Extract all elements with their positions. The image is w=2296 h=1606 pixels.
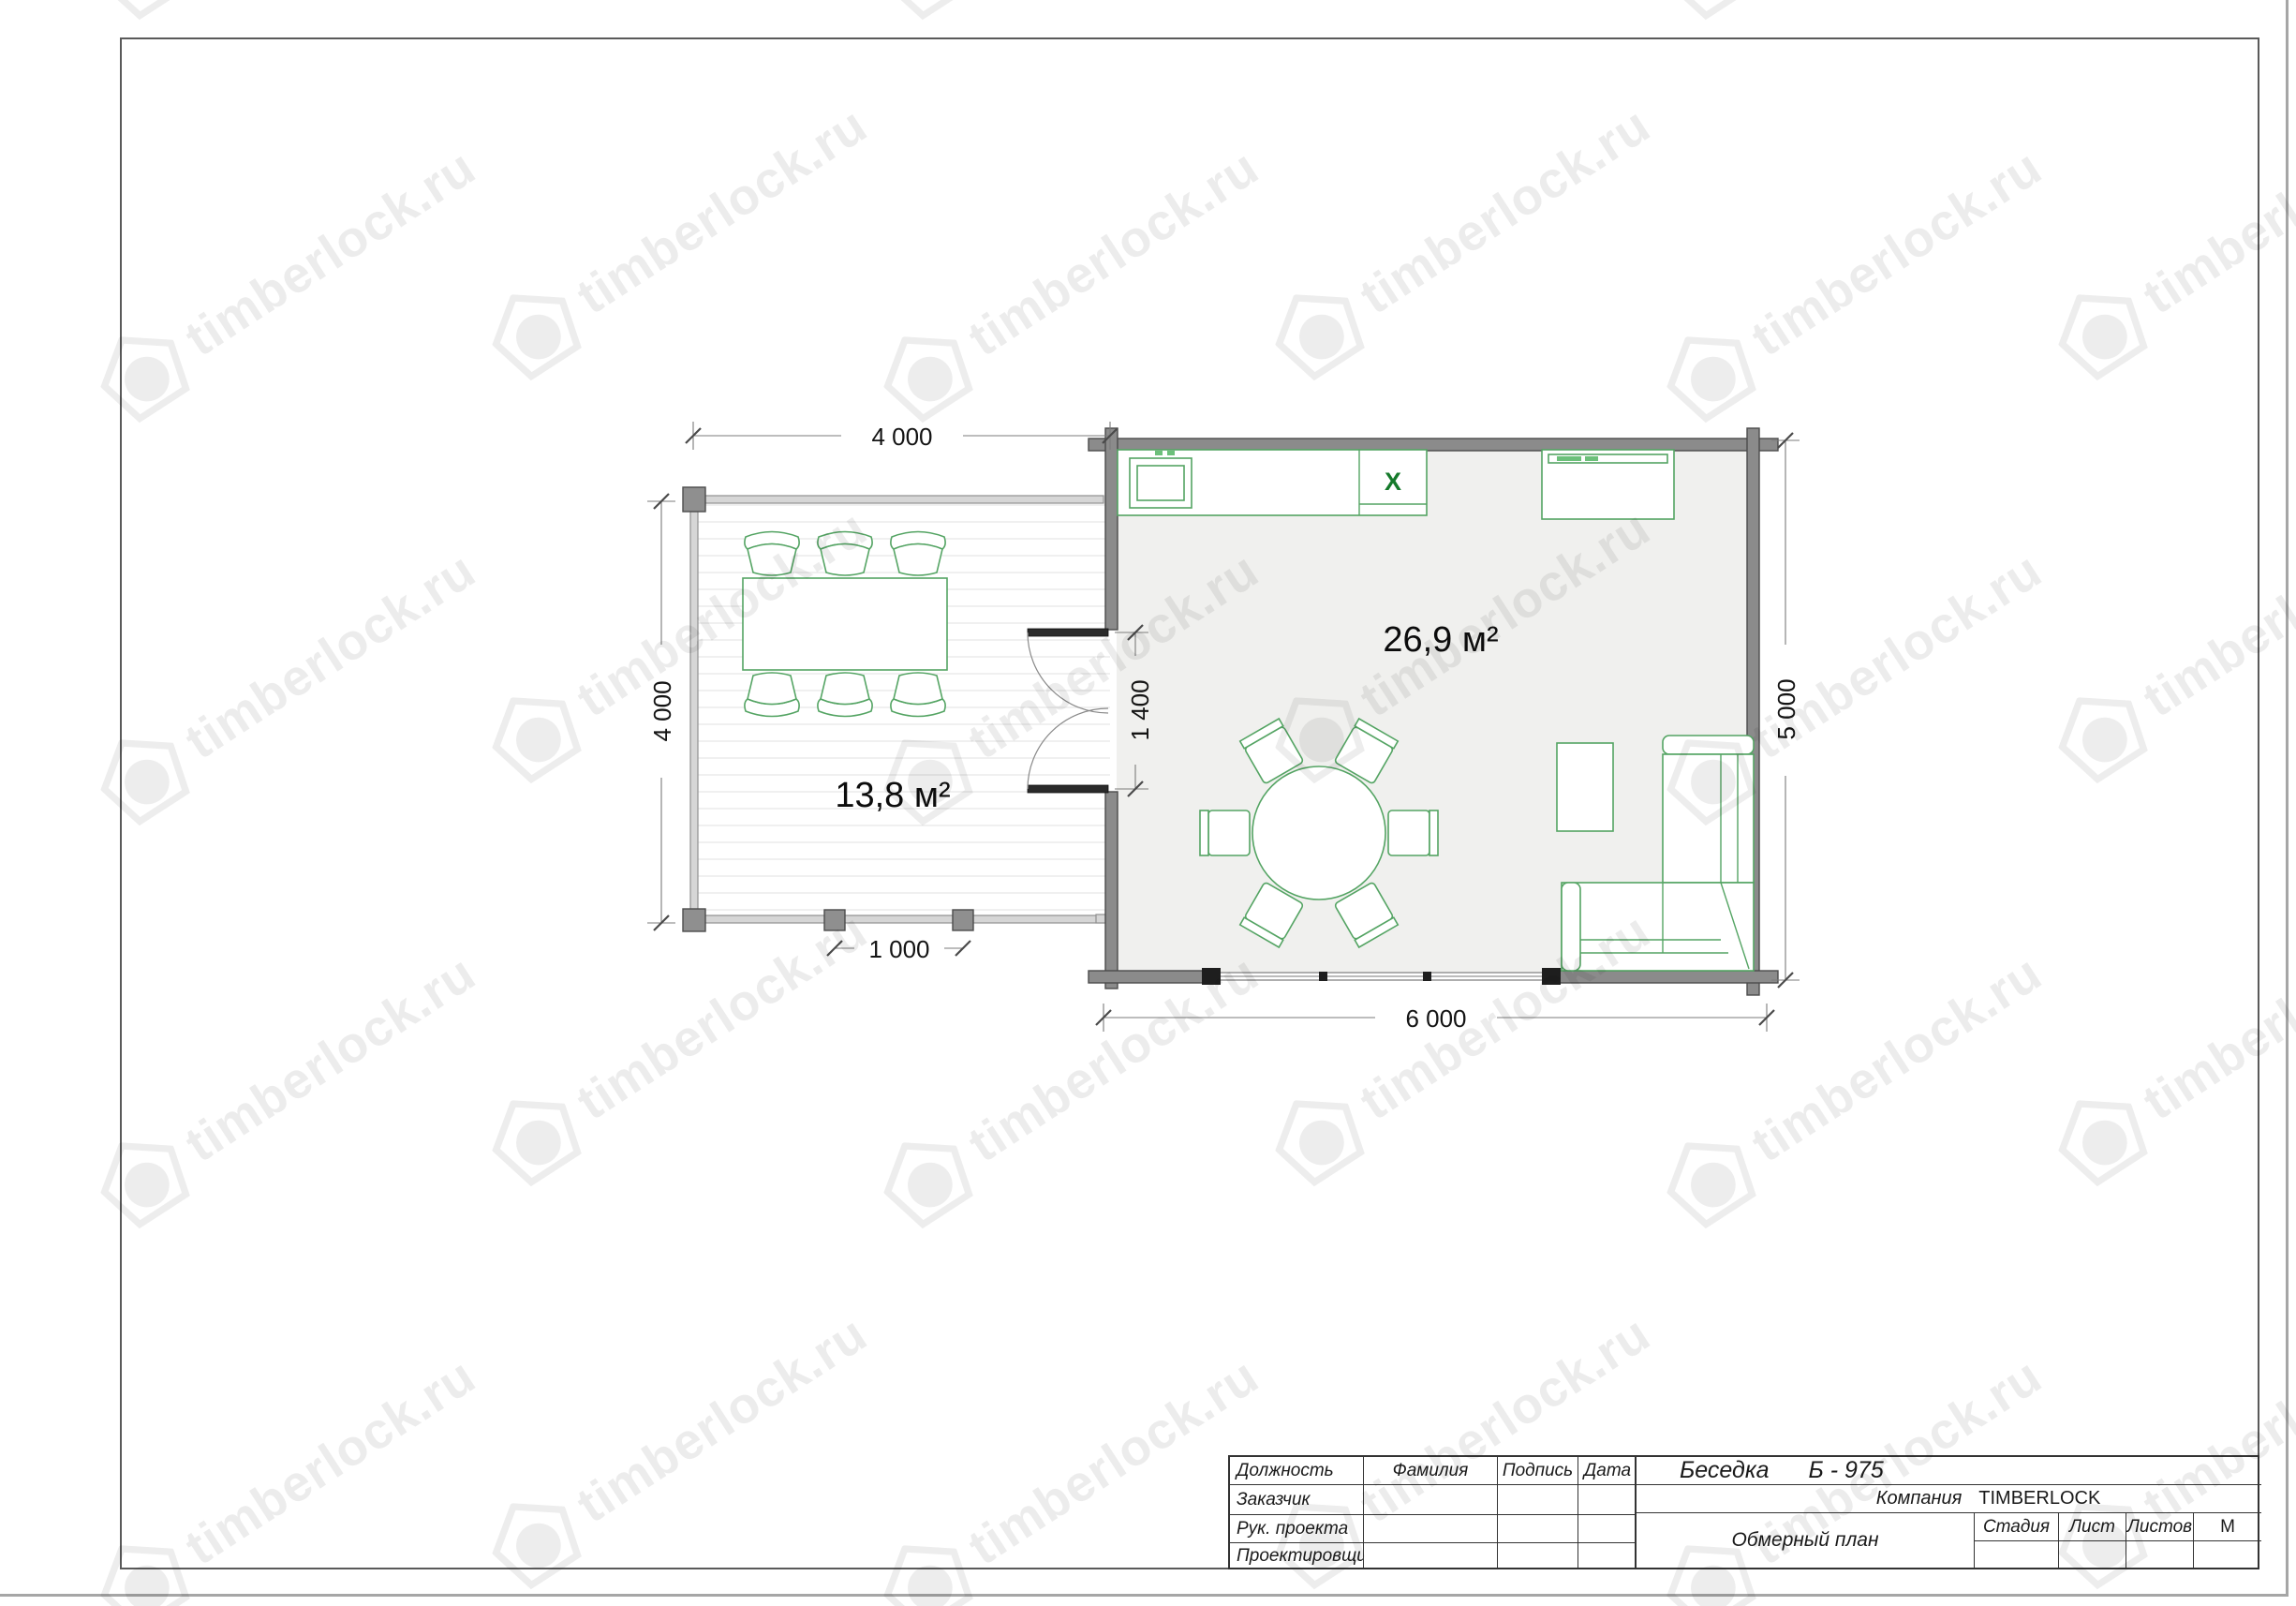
project-title-row: Беседка Б - 975 — [1637, 1457, 2261, 1485]
tb-row-project-lead: Рук. проекта — [1230, 1515, 1364, 1543]
drawing-sheet: X — [0, 0, 2296, 1606]
tb-empty-cell — [1498, 1485, 1578, 1515]
title-block: Должность Фамилия Подпись Дата Заказчик … — [1228, 1455, 2259, 1569]
title-block-right: Беседка Б - 975 Компания TIMBERLOCK Обме… — [1637, 1457, 2261, 1568]
project-type: Беседка — [1680, 1457, 1770, 1484]
sheet-edge — [0, 1594, 2289, 1597]
tb-row-designer: Проектировщик — [1230, 1543, 1364, 1569]
company-row: Компания TIMBERLOCK — [1637, 1485, 2261, 1513]
tb-empty-cell — [2194, 1541, 2261, 1568]
stage-header: Стадия — [1975, 1513, 2059, 1541]
sheet-edge — [2286, 0, 2289, 1596]
tb-signature-header: Подпись — [1498, 1457, 1578, 1485]
drawing-info-grid: Обмерный план Стадия Лист Листов М — [1637, 1513, 2261, 1568]
tb-row-customer: Заказчик — [1230, 1485, 1364, 1515]
drawing-name: Обмерный план — [1637, 1513, 1975, 1568]
tb-empty-cell — [2059, 1541, 2126, 1568]
drawing-frame — [120, 37, 2259, 1569]
sheets-header: Листов — [2126, 1513, 2194, 1541]
tb-empty-cell — [1364, 1515, 1498, 1543]
tb-empty-cell — [1364, 1543, 1498, 1569]
title-block-left-grid: Должность Фамилия Подпись Дата Заказчик … — [1230, 1457, 1637, 1568]
tb-position-header: Должность — [1230, 1457, 1364, 1485]
tb-empty-cell — [1364, 1485, 1498, 1515]
tb-date-header: Дата — [1578, 1457, 1637, 1485]
tb-empty-cell — [1498, 1543, 1578, 1569]
tb-empty-cell — [1975, 1541, 2059, 1568]
company-label: Компания — [1876, 1488, 1963, 1509]
tb-empty-cell — [2126, 1541, 2194, 1568]
scale-header: М — [2194, 1513, 2261, 1541]
tb-empty-cell — [1578, 1543, 1637, 1569]
project-code: Б - 975 — [1809, 1457, 1884, 1484]
company-name: TIMBERLOCK — [1978, 1488, 2100, 1509]
tb-empty-cell — [1578, 1515, 1637, 1543]
tb-empty-cell — [1498, 1515, 1578, 1543]
tb-surname-header: Фамилия — [1364, 1457, 1498, 1485]
tb-empty-cell — [1578, 1485, 1637, 1515]
sheet-header: Лист — [2059, 1513, 2126, 1541]
